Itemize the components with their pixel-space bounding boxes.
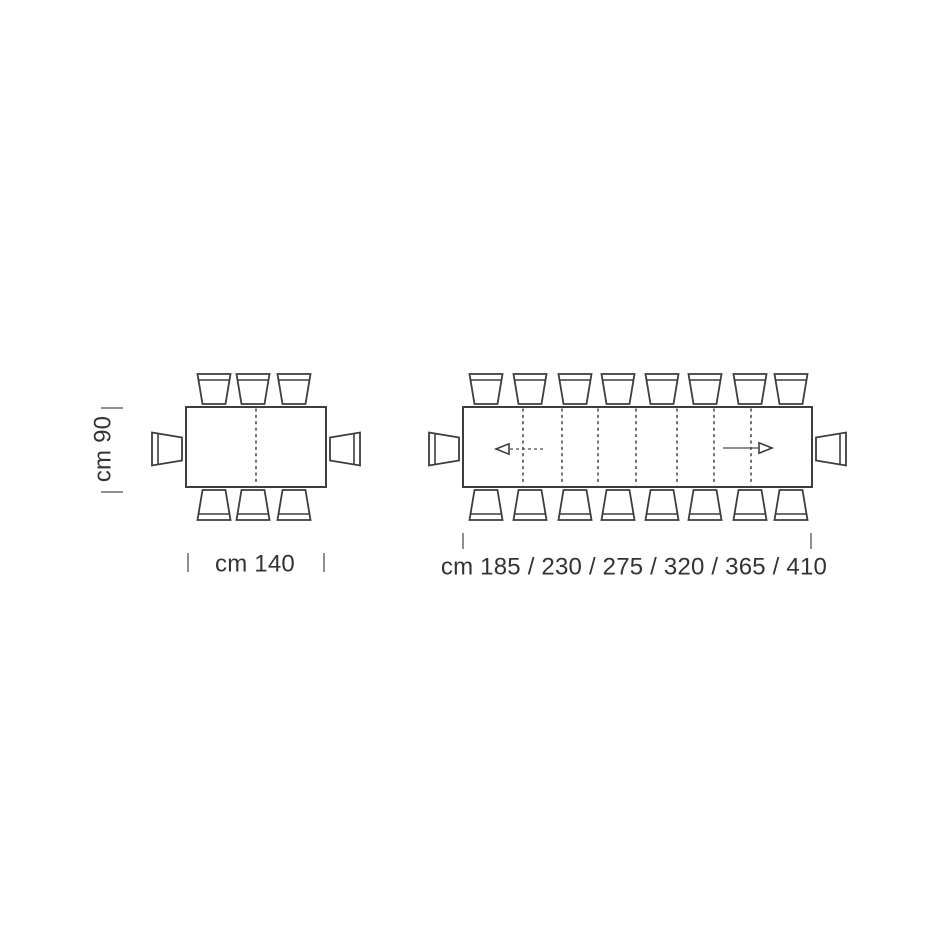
extending-table-chair-bottom [775, 490, 808, 520]
extension-lengths-dimension-label: cm 185 / 230 / 275 / 320 / 365 / 410 [441, 554, 827, 581]
extending-table-chair-top [602, 374, 635, 404]
extending-table-chair-top [514, 374, 547, 404]
extending-table-chair-top [646, 374, 679, 404]
page-background: cm 90 cm 140 cm 185 / 230 / 275 / 320 / … [0, 0, 950, 950]
table-dimensions-diagram: cm 90 cm 140 cm 185 / 230 / 275 / 320 / … [0, 0, 950, 950]
fixed-table-chair-bottom [237, 490, 270, 520]
extending-table-chair-top [775, 374, 808, 404]
extending-table-chair-bottom [646, 490, 679, 520]
shapes-layer [101, 374, 846, 572]
extending-table-chair-bottom [470, 490, 503, 520]
extending-table-chair-bottom [689, 490, 722, 520]
fixed-table-chair-top [198, 374, 231, 404]
fixed-table-chair-bottom [198, 490, 231, 520]
fixed-table-chair-top [237, 374, 270, 404]
extending-table-chair-bottom [559, 490, 592, 520]
extending-table-chair-bottom [734, 490, 767, 520]
extending-table-chair-right [816, 433, 846, 466]
fixed-table-chair-left [152, 433, 182, 466]
fixed-table-chair-right [330, 433, 360, 466]
extending-table-chair-top [559, 374, 592, 404]
extending-table-chair-bottom [514, 490, 547, 520]
extending-table-chair-top [734, 374, 767, 404]
extending-table-chair-top [470, 374, 503, 404]
extending-table-chair-top [689, 374, 722, 404]
height-dimension-label: cm 90 [90, 416, 117, 482]
extending-table-chair-left [429, 433, 459, 466]
fixed-table-chair-top [278, 374, 311, 404]
fixed-table-chair-bottom [278, 490, 311, 520]
extending-table-chair-bottom [602, 490, 635, 520]
fixed-length-dimension-label: cm 140 [215, 551, 295, 578]
